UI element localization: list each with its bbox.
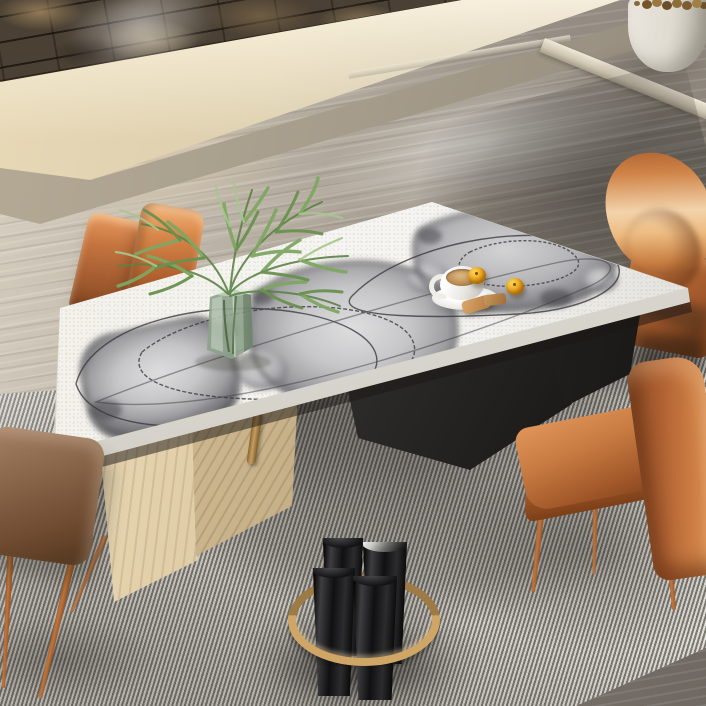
coffee-setting (420, 258, 550, 330)
stool-leg (34, 543, 81, 700)
dining-room-scene (0, 0, 706, 706)
biscuit-small (483, 293, 506, 306)
leather-stool-bottom-left (0, 424, 158, 706)
kumquat (506, 278, 524, 295)
dried-stems (634, 1, 640, 6)
stool-leg (0, 552, 16, 688)
black-vase-cluster (278, 518, 464, 706)
stool-seat (0, 425, 106, 568)
kumquat (468, 267, 486, 284)
leather-chair-bottom-right (494, 348, 706, 678)
